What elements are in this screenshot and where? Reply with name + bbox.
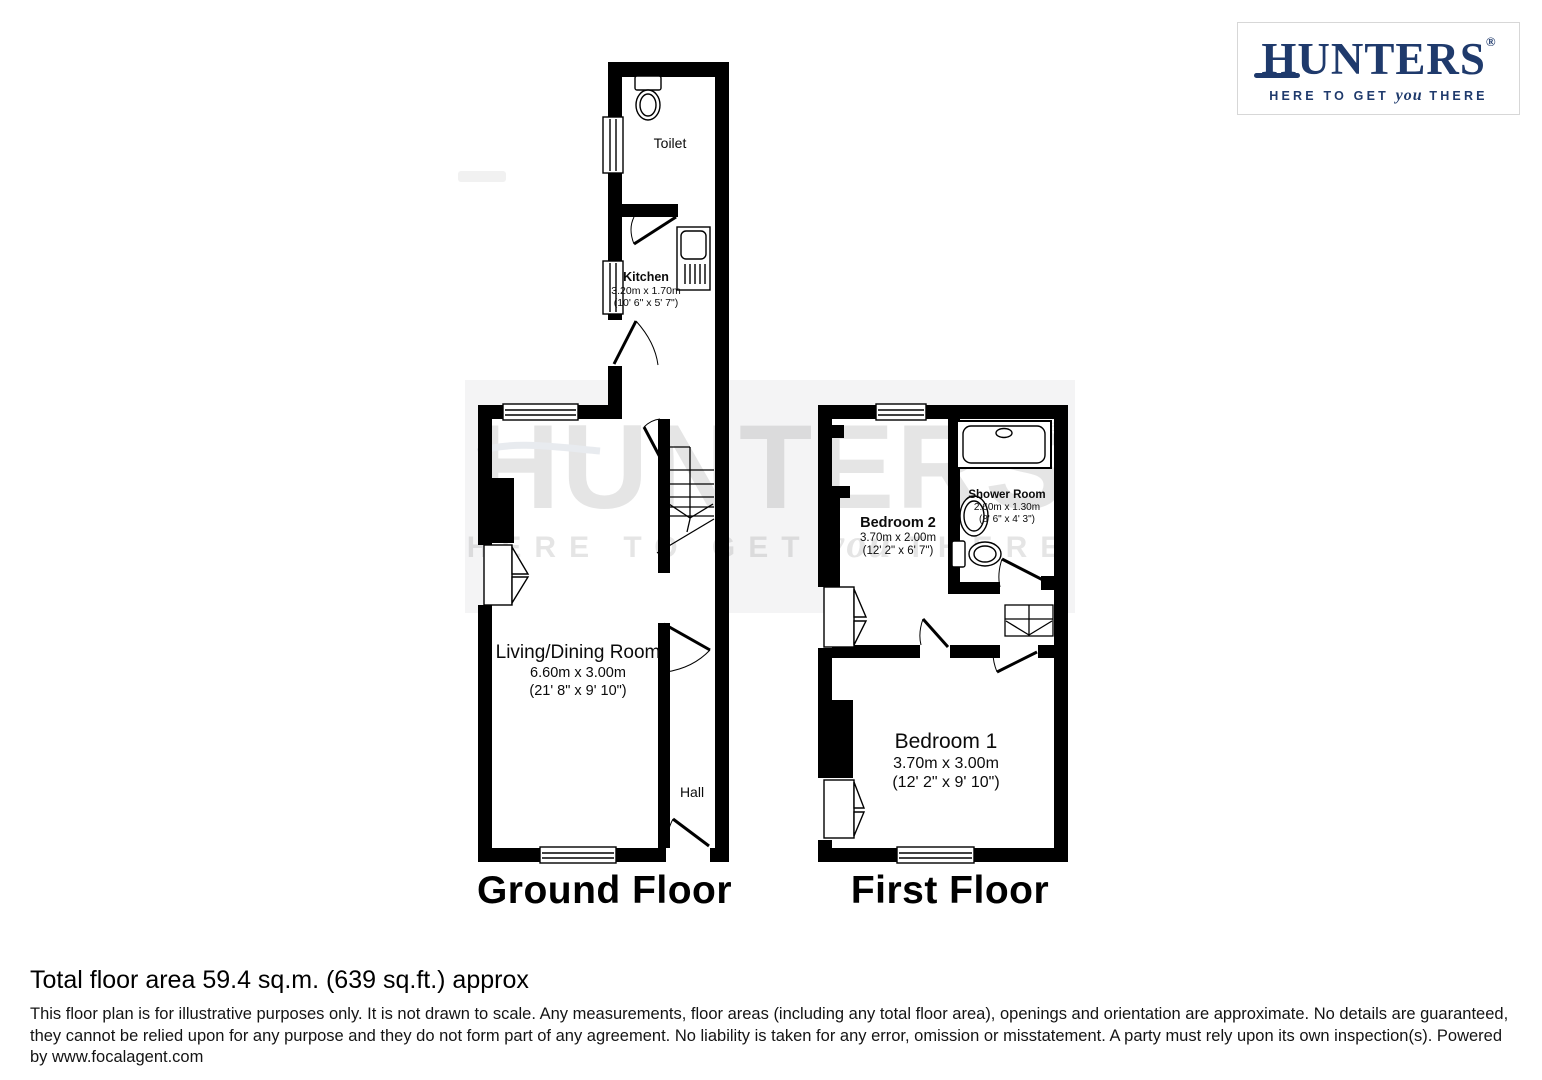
room-label-toilet: Toilet — [654, 135, 687, 151]
room-label-shower: Shower Room — [968, 489, 1045, 501]
logo-tagline: HERE TO GET you THERE — [1238, 87, 1519, 105]
registered-trademark-icon: ® — [1486, 34, 1496, 49]
floor-plan-canvas: HUNTERS ® HERE TO GETyouTHERE — [0, 0, 1542, 1080]
disclaimer-line: by www.focalagent.com — [30, 1047, 1508, 1069]
logo-tagline-post: THERE — [1429, 89, 1487, 103]
logo-wordmark: HUNTERS® — [1238, 35, 1519, 82]
logo-tagline-you: you — [1396, 87, 1423, 104]
disclaimer-text: This floor plan is for illustrative purp… — [30, 1004, 1508, 1069]
room-dims-kitchen-m: 3.20m x 1.70m — [611, 285, 681, 297]
first-floor-title: First Floor — [795, 869, 1105, 913]
room-dims-kitchen-ft: (10' 6" x 5' 7") — [614, 297, 679, 309]
room-dims-bedroom2-ft: (12' 2" x 6' 7") — [863, 545, 934, 557]
staircase-first — [1005, 605, 1053, 636]
toilet-fixture-first-icon — [952, 541, 1001, 567]
room-dims-bedroom2-m: 3.70m x 2.00m — [860, 532, 936, 544]
toilet-fixture-ground-icon — [635, 76, 661, 120]
floorplan-page: HUNTERS ® HERE TO GETyouTHERE — [0, 0, 1542, 1080]
hunters-logo: HUNTERS® HERE TO GET you THERE — [1237, 22, 1520, 115]
window-toilet — [603, 117, 623, 173]
window-bedroom2-top — [876, 404, 926, 420]
ground-floor-title: Ground Floor — [452, 869, 757, 913]
logo-text: HUNTERS — [1261, 34, 1486, 84]
window-living-top — [503, 404, 578, 420]
room-dims-living-m: 6.60m x 3.00m — [530, 665, 626, 681]
disclaimer-line: they cannot be relied upon for any purpo… — [30, 1026, 1508, 1048]
disclaimer-line: This floor plan is for illustrative purp… — [30, 1004, 1508, 1026]
room-label-bedroom1: Bedroom 1 — [895, 730, 998, 753]
room-dims-living-ft: (21' 8" x 9' 10") — [529, 683, 626, 699]
room-label-living: Living/Dining Room — [496, 642, 661, 663]
window-living-bottom — [540, 847, 616, 863]
window-bedroom1-bottom — [897, 847, 974, 863]
logo-tagline-pre: HERE TO GET — [1269, 89, 1389, 103]
room-dims-bedroom1-ft: (12' 2" x 9' 10") — [892, 774, 999, 791]
room-dims-bedroom1-m: 3.70m x 3.00m — [893, 755, 999, 772]
room-label-hall: Hall — [680, 784, 704, 800]
shower-tray-icon — [957, 421, 1051, 468]
kitchen-sink-unit-icon — [677, 227, 710, 290]
total-floor-area: Total floor area 59.4 sq.m. (639 sq.ft.)… — [30, 966, 529, 995]
room-label-kitchen: Kitchen — [623, 270, 669, 284]
room-label-bedroom2: Bedroom 2 — [860, 515, 936, 531]
room-dims-shower-m: 2.60m x 1.30m — [974, 502, 1040, 513]
faint-watermark-artifact — [458, 171, 506, 182]
room-dims-shower-ft: (8' 6" x 4' 3") — [979, 514, 1035, 525]
